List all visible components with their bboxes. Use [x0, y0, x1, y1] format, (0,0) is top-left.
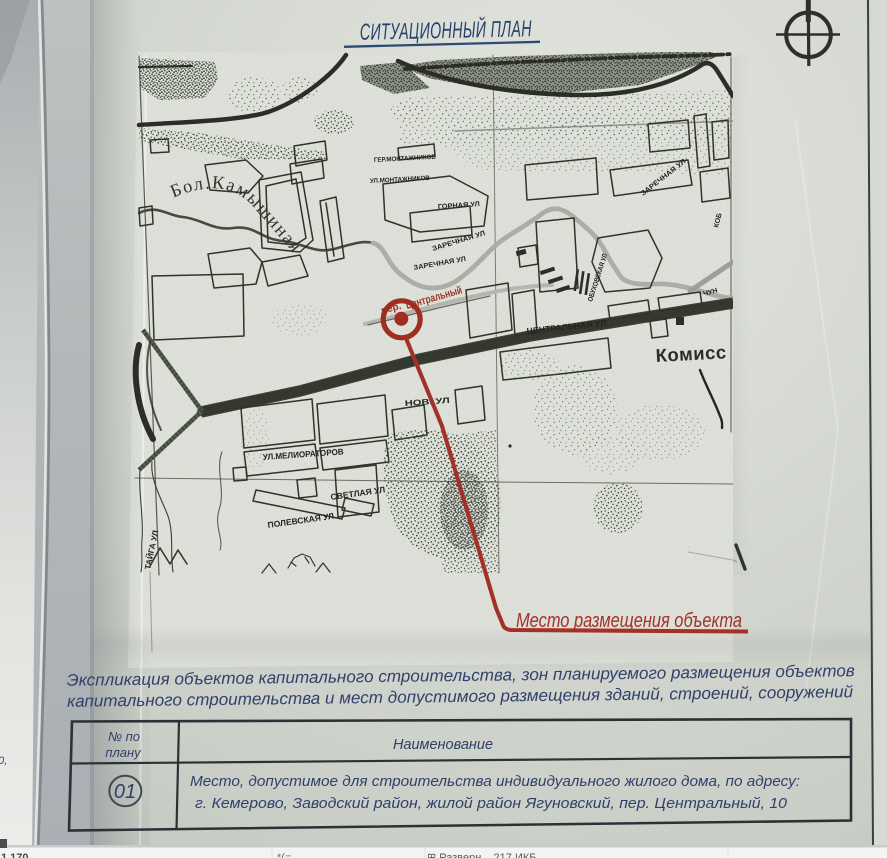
svg-text:№ по: № по	[108, 729, 140, 744]
svg-text:1 170: 1 170	[1, 852, 29, 858]
svg-text:Комисс: Комисс	[655, 341, 727, 366]
svg-text:СИТУАЦИОННЫЙ ПЛАН: СИТУАЦИОННЫЙ ПЛАН	[360, 14, 533, 45]
svg-text:Место, допустимое для строител: Место, допустимое для строительства инди…	[190, 774, 800, 790]
svg-text:01: 01	[114, 781, 136, 803]
svg-text:плану: плану	[105, 745, 142, 760]
svg-text:Наименование: Наименование	[393, 737, 493, 753]
svg-text:*(=: *(=	[277, 852, 291, 858]
svg-text:г. Кемерово, Заводский район,: г. Кемерово, Заводский район, жилой райо…	[195, 796, 788, 812]
svg-text:⊞ Разверн... 217 ИКБ: ⊞ Разверн... 217 ИКБ	[427, 852, 536, 858]
svg-text:0,: 0,	[0, 755, 7, 767]
svg-text:Место размещения объекта: Место размещения объекта	[516, 609, 742, 632]
